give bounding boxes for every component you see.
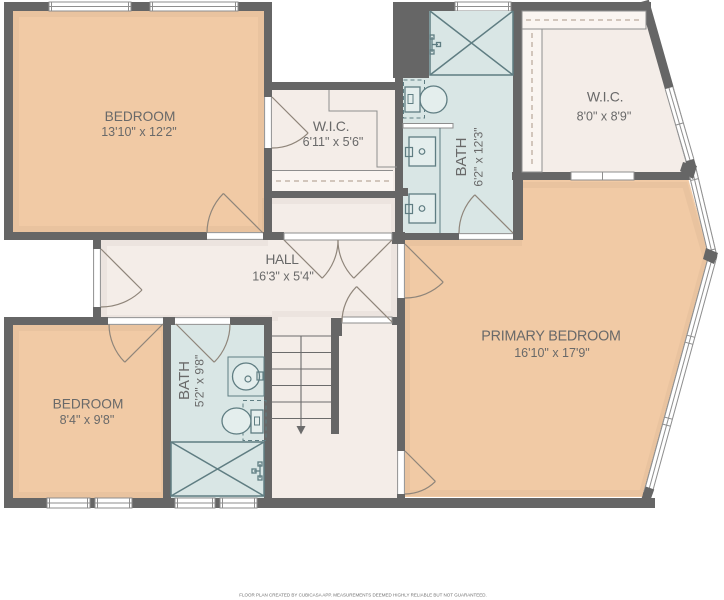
svg-text:PRIMARY BEDROOM: PRIMARY BEDROOM xyxy=(481,328,620,344)
svg-text:6'11" x 5'6": 6'11" x 5'6" xyxy=(303,135,364,149)
svg-text:16'3" x 5'4": 16'3" x 5'4" xyxy=(252,269,314,283)
svg-text:BATH: BATH xyxy=(176,361,193,400)
svg-text:BATH: BATH xyxy=(453,138,470,177)
svg-text:6'2" x 12'3": 6'2" x 12'3" xyxy=(472,127,486,186)
svg-text:BEDROOM: BEDROOM xyxy=(53,397,124,412)
svg-text:FLOOR PLAN CREATED BY CUBICASA: FLOOR PLAN CREATED BY CUBICASA APP. MEAS… xyxy=(239,593,486,598)
svg-text:5'2" x 9'8": 5'2" x 9'8" xyxy=(193,355,207,407)
svg-text:8'0" x 8'9": 8'0" x 8'9" xyxy=(577,109,632,123)
svg-text:13'10" x 12'2": 13'10" x 12'2" xyxy=(101,125,177,139)
svg-text:HALL: HALL xyxy=(265,252,299,267)
svg-text:BEDROOM: BEDROOM xyxy=(105,109,176,124)
svg-text:8'4" x 9'8": 8'4" x 9'8" xyxy=(60,413,115,427)
svg-text:W.I.C.: W.I.C. xyxy=(587,89,623,105)
svg-text:W.I.C.: W.I.C. xyxy=(313,118,349,134)
svg-text:16'10" x 17'9": 16'10" x 17'9" xyxy=(514,346,590,360)
